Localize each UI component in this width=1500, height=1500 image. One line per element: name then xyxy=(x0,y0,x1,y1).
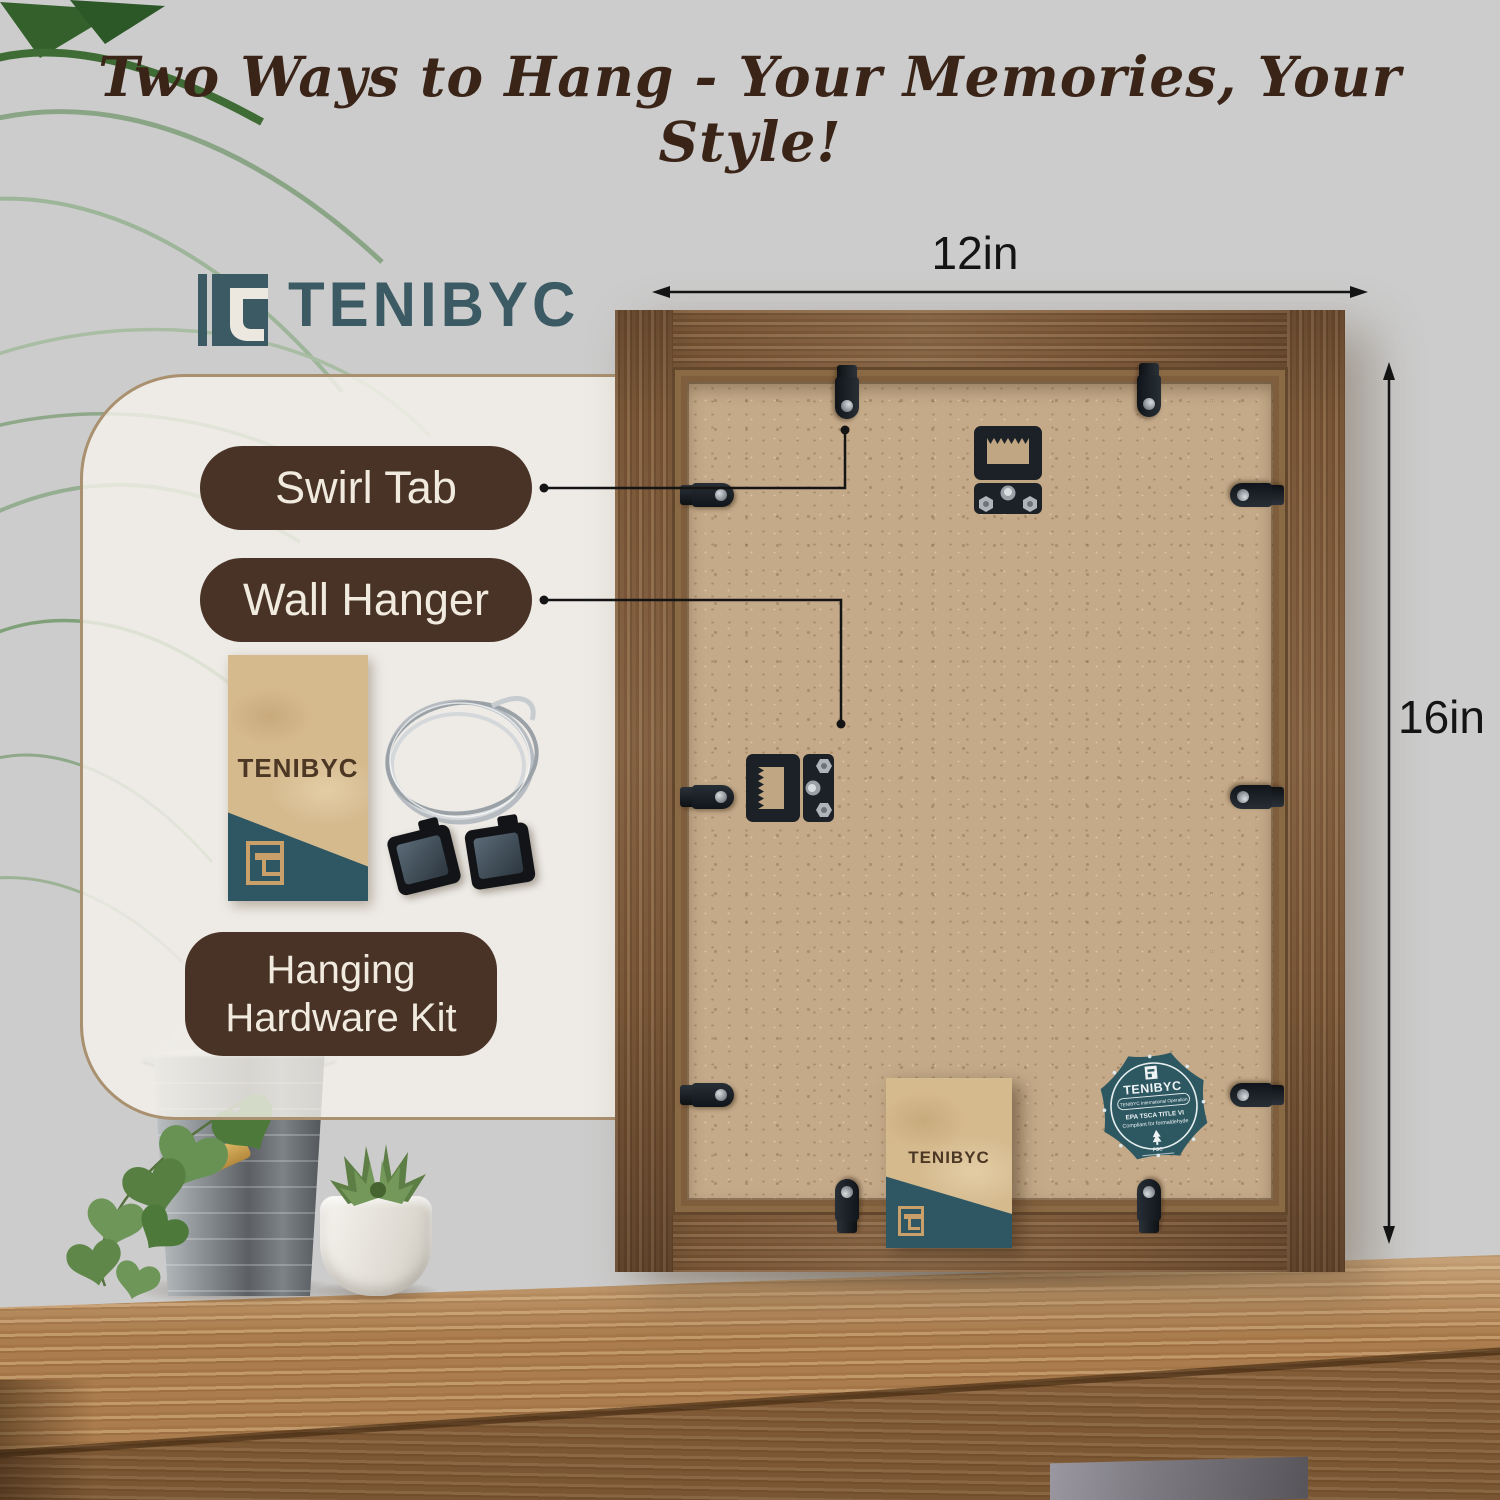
swirl-tab xyxy=(1136,1179,1162,1233)
sawtooth-hanger-icon xyxy=(972,424,1044,516)
frame-left-rail xyxy=(615,310,673,1272)
brand-wordmark: TENIBYC xyxy=(288,268,579,340)
swirl-tab xyxy=(1230,1082,1284,1108)
badge-cert: FSC xyxy=(1153,1146,1164,1153)
kit-envelope-logo-icon xyxy=(246,841,284,885)
product-image: Two Ways to Hang - Your Memories, Your S… xyxy=(0,0,1500,1500)
wall-hanger-label-text: Wall Hanger xyxy=(243,573,489,627)
frame-envelope-logo-icon xyxy=(898,1206,924,1236)
width-dimension-label: 12in xyxy=(875,226,1075,280)
swirl-tab xyxy=(680,1082,734,1108)
hardware-kit-line1: Hanging xyxy=(266,946,415,994)
hardware-kit-label: Hanging Hardware Kit xyxy=(185,932,497,1056)
height-dimension-label: 16in xyxy=(1398,690,1485,744)
succulent-plant xyxy=(322,1126,434,1226)
frame-right-rail xyxy=(1287,310,1345,1272)
pothos-plant xyxy=(35,1090,305,1300)
headline: Two Ways to Hang - Your Memories, Your S… xyxy=(60,44,1440,174)
wall-hanger-clip xyxy=(464,821,537,890)
height-dimension-arrow xyxy=(1376,360,1402,1246)
dresser-side-shadow xyxy=(0,1380,95,1500)
swirl-tab xyxy=(834,365,860,419)
width-dimension-arrow xyxy=(650,278,1370,306)
swirl-tab xyxy=(1230,482,1284,508)
swirl-tab xyxy=(680,784,734,810)
tenibyc-logo-icon xyxy=(196,268,272,352)
frame-envelope: TENIBYC xyxy=(886,1078,1012,1248)
sawtooth-hanger-icon xyxy=(744,752,836,824)
swirl-tab-label-text: Swirl Tab xyxy=(275,461,457,515)
hardware-kit-line2: Hardware Kit xyxy=(225,994,456,1042)
swirl-tab xyxy=(680,482,734,508)
wall-hanger-label: Wall Hanger xyxy=(200,558,532,642)
swirl-tab xyxy=(834,1179,860,1233)
frame-envelope-brand: TENIBYC xyxy=(886,1148,1012,1168)
stone-slab xyxy=(1050,1457,1308,1500)
kit-envelope: TENIBYC xyxy=(228,655,368,901)
kit-envelope-brand: TENIBYC xyxy=(228,753,368,784)
swirl-tab-label: Swirl Tab xyxy=(200,446,532,530)
compliance-badge: TENIBYC TENIBYC International Operation … xyxy=(1089,1041,1219,1171)
swirl-tab xyxy=(1136,363,1162,417)
swirl-tab xyxy=(1230,784,1284,810)
